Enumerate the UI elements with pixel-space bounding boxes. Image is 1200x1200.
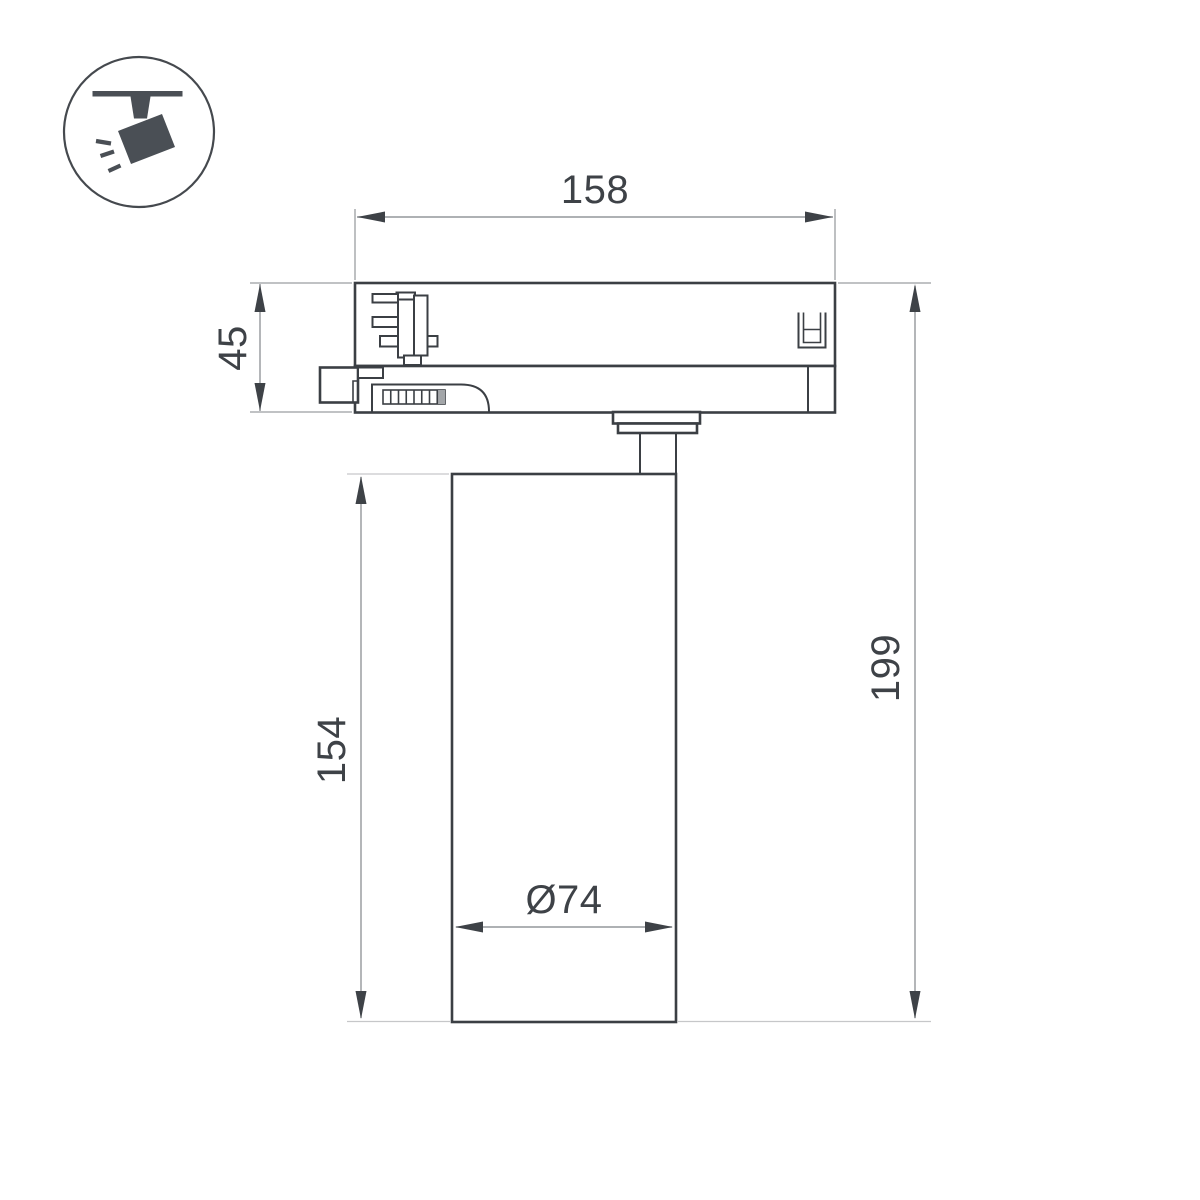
lamp-cylinder-body xyxy=(452,474,676,1022)
contact-prong-bottom xyxy=(380,336,398,347)
arrowhead-up xyxy=(356,476,367,504)
arrowhead-down xyxy=(255,383,266,411)
contact-prong-middle xyxy=(373,317,399,327)
dimension-label-total-height: 199 xyxy=(864,634,908,702)
arrowhead-left xyxy=(357,212,385,223)
track-spotlight-icon xyxy=(64,57,214,207)
track-rail-bar xyxy=(93,91,183,97)
contact-stem xyxy=(398,300,414,358)
dimension-drawing-svg: 158 45 154 199 xyxy=(0,0,1200,1200)
spotlight-head xyxy=(118,114,175,164)
pivot-joint xyxy=(613,412,700,473)
arrowhead-down xyxy=(910,991,921,1019)
dimension-158: 158 xyxy=(355,168,835,280)
flange-lower xyxy=(618,424,697,434)
arrowhead-right xyxy=(805,212,833,223)
dimension-label-adapter-width: 158 xyxy=(561,168,629,212)
contact-prong-top xyxy=(373,294,399,303)
arrowhead-up xyxy=(910,284,921,312)
dimension-label-adapter-height: 45 xyxy=(211,325,255,371)
track-stem xyxy=(131,97,151,119)
contact-body xyxy=(414,296,428,356)
ribbed-thumb-grip xyxy=(383,390,445,404)
arrowhead-up xyxy=(255,284,266,312)
flange-upper xyxy=(613,412,700,424)
grip-rib-end-cell xyxy=(437,390,445,404)
contact-cap xyxy=(397,293,416,300)
light-ray-icon xyxy=(96,141,111,144)
dimension-154: 154 xyxy=(310,474,449,1019)
dimension-label-body-height: 154 xyxy=(310,716,354,784)
latch-catch-box xyxy=(358,368,383,379)
arrowhead-down xyxy=(356,991,367,1019)
dimension-label-body-diameter: Ø74 xyxy=(525,878,602,922)
drawing-canvas: 158 45 154 199 xyxy=(0,0,1200,1200)
light-ray-icon xyxy=(101,152,115,157)
light-ray-icon xyxy=(109,166,121,172)
track-adapter xyxy=(320,283,835,413)
contact-foot xyxy=(404,356,421,366)
contact-prong-right xyxy=(428,336,438,347)
dimension-199: 199 xyxy=(838,283,931,1019)
